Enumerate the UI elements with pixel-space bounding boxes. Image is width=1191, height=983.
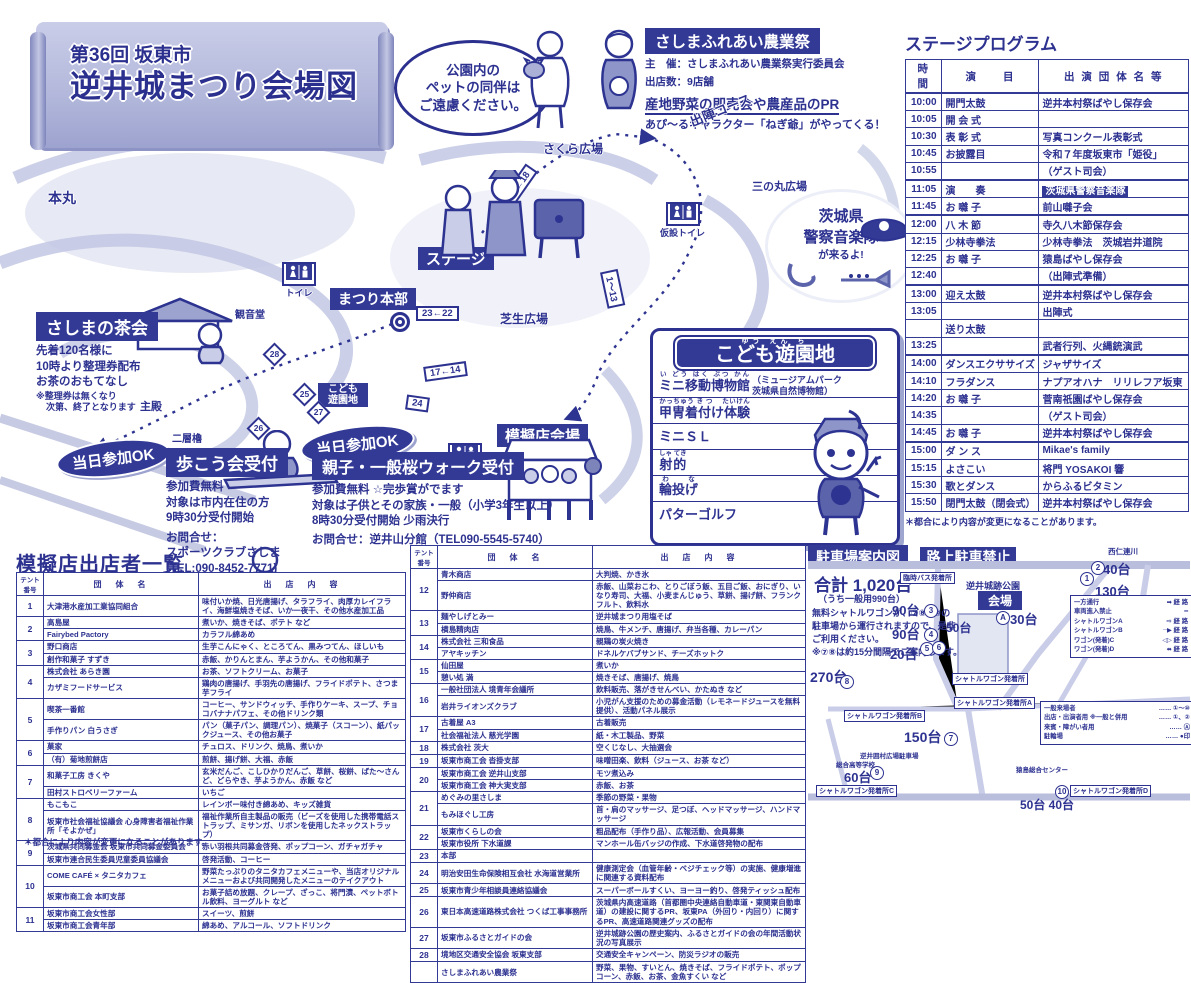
stage-cell: （ゲスト司会） <box>1039 162 1189 180</box>
stage-cell: 茨城県警察音楽隊 <box>1039 180 1189 198</box>
vendor-row: 27坂東市ふるさとガイドの会逆井城跡公園の歴史案内、ふるさとガイドの会の年間活動… <box>411 927 806 948</box>
parking-lot-count: 50台 <box>946 619 971 636</box>
parking-lot-count: 90台 <box>892 624 919 643</box>
stage-cell: 14:45 <box>906 424 942 442</box>
vendor-list-note: ＊都合により内容が変更になることがあります。 <box>24 836 210 848</box>
vendor-items: 逆井城まつり用塩そば <box>593 611 806 623</box>
vendor-tent-number <box>411 962 438 983</box>
stage-program-row: 13:05出陣式 <box>906 303 1189 320</box>
stage-cell: お 囃 子 <box>942 250 1039 267</box>
band-line1: 茨城県 <box>818 205 863 226</box>
shuttle-stop-label: シャトルワゴン発着所D <box>1070 785 1151 797</box>
vendor-row: 坂東市役所 下水道課マンホール缶バッジの作成、下水道啓発物の配布 <box>411 837 806 849</box>
vendor-items: 大判焼、かき氷 <box>593 569 806 581</box>
vendor-items: 生芋こんにゃく、ところてん、黒みつてん、ほしいも <box>199 641 406 653</box>
stage-cell: お 囃 子 <box>942 198 1039 216</box>
vendor-items: 健康測定会（血管年齢・ベジチェック等）の実施、健康増進に関連する資料配布 <box>593 862 806 883</box>
vendor-row: アヤキッチンドネルケバブサンド、チーズホットク <box>411 647 806 659</box>
tent-marker-number: 25 <box>298 388 311 401</box>
vendor-group-name: 菓家 <box>44 741 199 753</box>
shuttle-stop-label: シャトルワゴン発着所 <box>952 673 1028 685</box>
vendor-items: お茶、ソフトクリーム、お菓子 <box>199 665 406 677</box>
stage-cell: 少林寺拳法 <box>942 233 1039 250</box>
stage-cell: 逆井本村祭ばやし保存会 <box>1039 494 1189 511</box>
stage-cell: 菅南祇園ばやし保存会 <box>1039 390 1189 407</box>
parking-lot-count: 30台 <box>1010 609 1037 628</box>
stage-characters-illustration <box>430 170 590 260</box>
restroom-icon <box>666 202 700 226</box>
map-label-sannomaru: 三の丸広場 <box>752 178 807 194</box>
map-label-honmaru: 本丸 <box>48 188 76 208</box>
vendor-row: 25坂東市青少年相談員連絡協議会スーパーボールすくい、ヨーヨー釣り、啓発ティッシ… <box>411 884 806 897</box>
vendor-row: 26東日本高速道路株式会社 つくば工事事務所茨城県内高速道路（首都圏中央連絡自動… <box>411 897 806 927</box>
kids-attraction-text: ミニ移動博物館い どう はく ぶつ かん <box>659 378 750 393</box>
stage-program-row: 10:00開門太鼓逆井本村祭ばやし保存会 <box>906 93 1189 111</box>
user-legend-value: …… ●印 <box>1166 732 1190 741</box>
route-marker: 17←14 <box>423 361 467 382</box>
route-legend-symbol: ⬌ 経 路 <box>1167 645 1188 654</box>
stage-cell: 10:30 <box>906 128 942 145</box>
route-legend-row: 一方通行➡ 経 路 <box>1074 598 1188 607</box>
vendor-group-name: 創作和菓子 すずき <box>44 653 199 665</box>
stage-cell: 12:15 <box>906 233 942 250</box>
stage-cell: 15:15 <box>906 459 942 476</box>
stage-program-title: ステージプログラム <box>905 30 1189 55</box>
stage-col-time: 時 間 <box>906 60 942 94</box>
vendor-row: 23本部 <box>411 849 806 862</box>
vendor-items: 粗品配布（手作り品）、広報活動、会員募集 <box>593 825 806 837</box>
route-marker: 24 <box>405 395 429 413</box>
tent-marker: 25 <box>292 382 316 406</box>
vendor-group-name: 野仲商店 <box>438 581 593 611</box>
restroom-label: 仮設トイレ <box>660 226 705 239</box>
vendor-tent-number: 28 <box>411 948 438 961</box>
stage-col-program: 演 目 <box>942 60 1039 94</box>
vendor-items: 小児がん支援のための募金活動（レモネードジュースを無料提供）、活動パネル展示 <box>593 696 806 717</box>
vendor-items: 茨城県内高速道路（首都圏中央連絡自動車道・東関東自動車道）の建設に関するPR、坂… <box>593 897 806 927</box>
highlighted-performer: 茨城県警察音楽隊 <box>1042 186 1128 197</box>
stage-cell: 演 奏 <box>942 180 1039 198</box>
vendor-group-name: COME CAFÉ × タニタカフェ <box>44 865 199 886</box>
stage-cell: 令和７年度坂東市「姫役」 <box>1039 145 1189 162</box>
user-legend-value: …… Ⓐ <box>1169 723 1190 732</box>
vendor-row: 手作りパン 白うさぎパン（菓子パン、調理パン）、焼菓子（スコーン）、紙パックジュ… <box>17 720 406 741</box>
stage-program-row: 14:10フラダンスナプアオハナ リリレフア坂東 <box>906 373 1189 390</box>
vendor-group-name: 本部 <box>438 849 593 862</box>
tea-party-line2: 10時より整理券配布 <box>36 361 141 373</box>
vendor-row: 22坂東市くらしの会粗品配布（手作り品）、広報活動、会員募集 <box>411 825 806 837</box>
kids-attraction-item: ミニ移動博物館い どう はく ぶつ かん（ミュージアムパーク茨城県自然博物館） <box>653 371 897 397</box>
vendor-items: 空くじなし、大抽選会 <box>593 741 806 754</box>
tea-party-note1: ※整理券は無くなり <box>36 391 117 401</box>
stage-program-row: 14:35（ゲスト司会） <box>906 407 1189 424</box>
stage-cell: 15:00 <box>906 442 942 460</box>
vendor-tent-number: 17 <box>411 717 438 741</box>
vendor-items: ドネルケバブサンド、チーズホットク <box>593 647 806 659</box>
parking-lot-count: 60台 <box>844 767 871 786</box>
vendor-group-name: 大津港水産加工業協同組合 <box>44 596 199 617</box>
vendor-group-name: 明治安田生命保険相互会社 水海道営業所 <box>438 862 593 883</box>
route-legend-label: ワゴン(発着)C <box>1074 636 1114 645</box>
vendor-col-name-l: 団 体 名 <box>44 573 199 596</box>
vendor-tent-number: 3 <box>17 641 44 665</box>
parking-panel: 駐車場案内図 路上駐車禁止 合計 1,020台 （うち一般用990台） 無料シャ… <box>808 545 1190 841</box>
stage-program-row: 15:00ダ ン スMikae's family <box>906 442 1189 460</box>
stage-cell: 寺久八木節保存会 <box>1039 215 1189 233</box>
stage-program-row: 12:25お 囃 子猿島ばやし保存会 <box>906 250 1189 267</box>
vendor-row: 4株式会社 あらき園お茶、ソフトクリーム、お菓子 <box>17 665 406 677</box>
stage-program-row: 10:05開 会 式 <box>906 111 1189 128</box>
vendor-tent-number: 27 <box>411 927 438 948</box>
kids-attraction-ruby: かっちゅう き つ たいけん <box>659 398 750 405</box>
vendor-row: 6菓家チュロス、ドリンク、焼鳥、煮いか <box>17 741 406 753</box>
stage-cell: 写真コンクール表彰式 <box>1039 128 1189 145</box>
vendor-row: もみほぐし工房首・肩のマッサージ、足つぼ、ヘッドマッサージ、ハンドマッサージ <box>411 804 806 825</box>
stage-program-row: 10:30表 彰 式写真コンクール表彰式 <box>906 128 1189 145</box>
stage-program-row: 14:20お 囃 子菅南祇園ばやし保存会 <box>906 390 1189 407</box>
vendor-row: 13麺やしげとみー逆井城まつり用塩そば <box>411 611 806 623</box>
parking-lot-number: 7 <box>944 732 958 746</box>
shuttle-stop-label: シャトルワゴン発着所C <box>816 785 897 797</box>
kids-attraction-text: 甲冑着付け体験かっちゅう き つ たいけん <box>659 405 750 420</box>
vendor-group-name: 坂東市商工会 神大実支部 <box>438 780 593 792</box>
stage-cell <box>906 320 942 337</box>
user-legend-row: 駐輪場…… ●印 <box>1044 732 1190 741</box>
vendor-col-items-r: 出 店 内 容 <box>593 546 806 569</box>
vendor-tent-number: 8 <box>17 798 44 840</box>
stage-cell: ダンスエクササイズ <box>942 355 1039 373</box>
parking-landmark-label: 猿島総合センター <box>1016 764 1068 774</box>
stage-program-row: 15:30歌とダンスからふるビタミン <box>906 477 1189 494</box>
stage-cell: 前山囃子会 <box>1039 198 1189 216</box>
walk-reception-panel: 歩こう会受付 参加費無料 対象は市内在住の方 9時30分受付開始 お問合せ： ス… <box>166 448 336 577</box>
vendor-row: 14株式会社 三和食品親鶏の炭火焼き <box>411 635 806 647</box>
vendor-tent-number: 16 <box>411 684 438 717</box>
user-legend-label: 駐輪場 <box>1044 732 1063 741</box>
vendor-row: 社会福祉法人 慈光学園紙・木工製品、野菜 <box>411 729 806 741</box>
vendor-tent-number: 21 <box>411 792 438 825</box>
stage-program-row: 13:00迎え太鼓逆井本村祭ばやし保存会 <box>906 285 1189 303</box>
vendor-group-name: 東日本高速道路株式会社 つくば工事事務所 <box>438 897 593 927</box>
vendor-group-name: 麺やしげとみー <box>438 611 593 623</box>
vendor-row: さしまふれあい農業祭野菜、果物、すいとん、焼きそば、フライドポテト、ポップコーン… <box>411 962 806 983</box>
route-legend-row: シャトルワゴンB┈▶ 経 路 <box>1074 626 1188 635</box>
parking-lot-count: 150台 <box>904 727 941 747</box>
vendor-group-name: 境地区交通安全協会 坂東支部 <box>438 948 593 961</box>
user-legend-label: 一般来場者 <box>1044 704 1075 713</box>
tea-party-panel: さしまの茶会 先着120名様に 10時より整理券配布 お茶のおもてなし ※整理券… <box>36 312 216 413</box>
vendor-group-name: 坂東市青少年相談員連絡協議会 <box>438 884 593 897</box>
stage-program-table: 時 間 演 目 出 演 団 体 名 等 10:00開門太鼓逆井本村祭ばやし保存会… <box>905 59 1189 512</box>
vendor-items: 飲料販売、落がきせんべい、かたぬき など <box>593 684 806 696</box>
kids-attraction-text: 射的しゃ てき <box>659 457 687 472</box>
vendor-group-name: 社会福祉法人 慈光学園 <box>438 729 593 741</box>
vendor-tent-number: 20 <box>411 768 438 792</box>
stage-cell: （ゲスト司会） <box>1039 407 1189 424</box>
sakura-walk-line2: 対象は子供とその家族・一般（小学3年生以上） <box>312 500 560 512</box>
vendor-tent-number: 14 <box>411 635 438 659</box>
vendor-group-name: もみほぐし工房 <box>438 804 593 825</box>
vendor-row: 坂東市連合民生委員児童委員協議会啓発活動、コーヒー <box>17 853 406 865</box>
vendor-row: 横島精肉店焼鳥、牛メンチ、唐揚げ、弁当各種、カレーパン <box>411 623 806 635</box>
kids-attraction-ruby: しゃ てき <box>659 450 687 457</box>
stage-cell: お 囃 子 <box>942 424 1039 442</box>
kids-attraction-text: ミニＳＬ <box>659 429 711 444</box>
vendor-table-left: テント番号 団 体 名 出 店 内 容 1大津港水産加工業協同組合味付いか焼、日… <box>16 572 406 932</box>
vendor-col-items-l: 出 店 内 容 <box>199 573 406 596</box>
vendor-col-no-l: テント番号 <box>17 573 44 596</box>
route-legend-symbol: ⇨ 経 路 <box>1167 617 1188 626</box>
stage-program-row: 12:15少林寺拳法少林寺拳法 茨城岩井道院 <box>906 233 1189 250</box>
vendor-items: 赤飯、かりんとまん、芋ようかん、その他和菓子 <box>199 653 406 665</box>
vendor-row: （有）菊地煎餅店煎餅、揚げ餅、大福、赤飯 <box>17 753 406 765</box>
vendor-items: 焼鳥、牛メンチ、唐揚げ、弁当各種、カレーパン <box>593 623 806 635</box>
stage-program-row: 14:00ダンスエクササイズジャザサイズ <box>906 355 1189 373</box>
vendor-items: 親鶏の炭火焼き <box>593 635 806 647</box>
vendor-items: 煎餅、揚げ餅、大福、赤飯 <box>199 753 406 765</box>
vendor-group-name: 坂東市商工会 逆井山支部 <box>438 768 593 780</box>
vendor-row: 岩井ライオンズクラブ小児がん支援のための募金活動（レモネードジュースを無料提供）… <box>411 696 806 717</box>
stage-cell: 14:35 <box>906 407 942 424</box>
vendor-row: 24明治安田生命保険相互会社 水海道営業所健康測定会（血管年齢・ベジチェック等）… <box>411 862 806 883</box>
tea-party-title: さしまの茶会 <box>36 312 158 341</box>
kids-attraction-ruby: い どう はく ぶつ かん <box>659 371 750 378</box>
stage-cell: 14:20 <box>906 390 942 407</box>
tea-party-line1: 先着120名様に <box>36 345 113 357</box>
vendor-col-no-r: テント番号 <box>411 546 438 569</box>
stage-cell: 送り太鼓 <box>942 320 1039 337</box>
vendor-group-name: 喫茶一番館 <box>44 698 199 719</box>
stage-cell: 11:05 <box>906 180 942 198</box>
parking-lot-number: 10 <box>1055 785 1069 799</box>
vendor-tent-number: 23 <box>411 849 438 862</box>
vendor-tent-number: 13 <box>411 611 438 635</box>
stage-cell: 12:25 <box>906 250 942 267</box>
vendor-group-name: 株式会社 あらき園 <box>44 665 199 677</box>
user-legend-row: 来賓・障がい者用…… Ⓐ <box>1044 723 1190 732</box>
vendor-items: 首・肩のマッサージ、足つぼ、ヘッドマッサージ、ハンドマッサージ <box>593 804 806 825</box>
vendor-items <box>593 849 806 862</box>
vendor-table-right: テント番号 団 体 名 出 店 内 容 12青木商店大判焼、かき氷野仲商店赤飯、… <box>410 545 806 983</box>
vendor-items: コーヒー、サンドウィッチ、手作りケーキ、スープ、チョコバナナパフェ、その他ドリン… <box>199 698 406 719</box>
parking-lot-number: 4 <box>924 628 938 642</box>
vendor-items: 交通安全キャンペーン、防災ラジオの販売 <box>593 948 806 961</box>
kids-note-line2: 茨城県自然博物館） <box>752 386 833 396</box>
map-label-yagura: 二層櫓 <box>172 430 202 445</box>
kids-park-panel: ゆう えん ち こども遊園地 ミニ移動博物館い どう はく ぶつ かん（ミュージ… <box>650 328 900 546</box>
vendor-row: 28境地区交通安全協会 坂東支部交通安全キャンペーン、防災ラジオの販売 <box>411 948 806 961</box>
stage-cell: 10:05 <box>906 111 942 128</box>
vendor-row: 16一般社団法人 境青年会議所飲料販売、落がきせんべい、かたぬき など <box>411 684 806 696</box>
vendor-group-name: 株式会社 三和食品 <box>438 635 593 647</box>
restroom-sign: 仮設トイレ <box>660 202 705 239</box>
vendor-group-name: 坂東市ふるさとガイドの会 <box>438 927 593 948</box>
vendor-group-name: 憩い処 満 <box>438 671 593 683</box>
parking-lot-count: 50台 40台 <box>1020 796 1074 813</box>
vendor-row: 野仲商店赤飯、山菜おこわ、とりごぼう飯、五目ご飯、おにぎり、いなり寿司、大福、小… <box>411 581 806 611</box>
map-label-kannondo: 観音堂 <box>235 306 265 321</box>
vendor-group-name: 坂東市商工会 沓掛支部 <box>438 754 593 767</box>
vendor-items: 野菜たっぷりのタニタカフェメニューや、当店オリジナルメニューおよび共同開発したメ… <box>199 865 406 886</box>
vendor-items: スイーツ、煎餅 <box>199 908 406 920</box>
parking-shuttle-line3: ご利用ください。 <box>812 634 884 644</box>
kids-attraction-note: （ミュージアムパーク茨城県自然博物館） <box>752 375 842 396</box>
stage-program-row: 14:45お 囃 子逆井本村祭ばやし保存会 <box>906 424 1189 442</box>
vendor-row: 8もこもこレインボー味付き綿あめ、キッズ雑貨 <box>17 798 406 810</box>
parking-river-label: 西仁連川 <box>1108 546 1138 557</box>
stage-cell <box>942 303 1039 320</box>
vendor-items: いちご <box>199 786 406 798</box>
route-legend-label: シャトルワゴンA <box>1074 617 1123 626</box>
route-legend-label: ワゴン(発着)D <box>1074 645 1114 654</box>
vendor-tent-number: 11 <box>17 908 44 932</box>
vendor-tent-number: 1 <box>17 596 44 617</box>
vendor-row: 坂東市商工会 本町支部お菓子詰め放題、クレープ、ざっこ、将門漬、ペットボトル飲料… <box>17 886 406 907</box>
stage-cell: 12:40 <box>906 267 942 285</box>
vendor-tent-number: 15 <box>411 659 438 683</box>
kids-park-title-text: こども遊園地 <box>715 344 835 366</box>
vendor-group-name: 田村ストロベリーファーム <box>44 786 199 798</box>
parking-lot-number: 3 <box>924 604 938 618</box>
vendor-tent-number: 19 <box>411 754 438 767</box>
vendor-items: 味付いか焼、日光唐揚げ、タラフライ、肉厚カレイフライ、海鮮塩焼きそば、いか一夜干… <box>199 596 406 617</box>
parking-route-legend: 一方通行➡ 経 路車両進入禁止━ シャトルワゴンA⇨ 経 路シャトルワゴンB┈▶… <box>1070 595 1191 658</box>
vendor-group-name: めぐみの里さしま <box>438 792 593 804</box>
police-cap-illustration <box>858 210 910 244</box>
stage-program-note: ＊都合により内容が変更になることがあります。 <box>905 515 1189 528</box>
user-legend-value: …… ①〜⑩ <box>1159 704 1190 713</box>
vendor-group-name: 手作りパン 白うさぎ <box>44 720 199 741</box>
stage-cell: Mikae's family <box>1039 442 1189 460</box>
vendor-items: 紙・木工製品、野菜 <box>593 729 806 741</box>
stage-cell: 13:25 <box>906 337 942 355</box>
shuttle-stop-label: シャトルワゴン発着所B <box>844 710 925 722</box>
sakura-walk-line3: 8時30分受付開始 少雨決行 <box>312 515 449 527</box>
stage-cell: 逆井本村祭ばやし保存会 <box>1039 285 1189 303</box>
vendor-row: 憩い処 満焼きそば、唐揚げ、焼鳥 <box>411 671 806 683</box>
vendor-row: 田村ストロベリーファームいちご <box>17 786 406 798</box>
restroom-icon <box>282 262 316 286</box>
vendor-row: 17古着屋 A3古着販売 <box>411 717 806 729</box>
vendor-items: カラフル綿あめ <box>199 629 406 641</box>
vendor-row: 3野口商店生芋こんにゃく、ところてん、黒みつてん、ほしいも <box>17 641 406 653</box>
route-legend-row: ワゴン(発着)D⬌ 経 路 <box>1074 645 1188 654</box>
vendor-row: 21めぐみの里さしま季節の野菜・果物 <box>411 792 806 804</box>
vendor-items: 赤飯、お茶 <box>593 780 806 792</box>
vendor-items: スーパーボールすくい、ヨーヨー釣り、啓発ティッシュ配布 <box>593 884 806 897</box>
parking-landmark-label: 総合高等学校 <box>836 759 875 769</box>
vendor-tent-number: 5 <box>17 698 44 740</box>
parking-lot-count: 90台 <box>892 600 919 619</box>
map-label-course: 出陣コース <box>687 89 754 131</box>
stage-program-row: 11:45お 囃 子前山囃子会 <box>906 198 1189 216</box>
vendor-items: お菓子詰め放題、クレープ、ざっこ、将門漬、ペットボトル飲料、ヨーグルト など <box>199 886 406 907</box>
restroom-sign: トイレ <box>282 262 316 299</box>
festival-flyer: { "title": {"line1": "第36回 坂東市", "line2"… <box>0 0 1191 842</box>
parking-bus-stop-label: 臨時バス発着所 <box>900 572 955 584</box>
vendor-items: 煮いか、焼きそば、ポテト など <box>199 617 406 629</box>
vendor-row: 5喫茶一番館コーヒー、サンドウィッチ、手作りケーキ、スープ、チョコバナナパフェ、… <box>17 698 406 719</box>
stage-cell: 14:00 <box>906 355 942 373</box>
vendor-row: 7和菓子工房 きくや玄米だんご、こしひかりだんご、草餅、桜餅、ばた〜さんど、どら… <box>17 765 406 786</box>
stage-cell: お披露目 <box>942 145 1039 162</box>
stage-cell: フラダンス <box>942 373 1039 390</box>
stage-cell: ナプアオハナ リリレフア坂東 <box>1039 373 1189 390</box>
vendor-group-name: 青木商店 <box>438 569 593 581</box>
vendor-group-name: 株式会社 茨大 <box>438 741 593 754</box>
kids-attraction-text: 輪投げわ な <box>659 482 698 497</box>
stage-cell: からふるビタミン <box>1039 477 1189 494</box>
route-marker: 1〜13 <box>600 269 625 309</box>
vendor-group-name: 古着屋 A3 <box>438 717 593 729</box>
parking-lot-number: 1 <box>1080 572 1094 586</box>
vendor-group-name: 横島精肉店 <box>438 623 593 635</box>
vendor-group-name: 仙田屋 <box>438 659 593 671</box>
parking-venue-label: 会場 <box>978 591 1022 610</box>
vendor-row: 坂東市商工会 神大実支部赤飯、お茶 <box>411 780 806 792</box>
shuttle-stop-label: シャトルワゴン発着所A <box>954 697 1035 709</box>
tea-party-note2: 次第、終了となります <box>46 402 136 412</box>
sakura-walk-contact: お問合せ：逆井山分館（TEL090-5545-5740） <box>312 534 550 546</box>
parking-lot-count: 40台 <box>1103 559 1130 578</box>
route-legend-label: シャトルワゴンB <box>1074 626 1123 635</box>
vendor-row: 15仙田屋煮いか <box>411 659 806 671</box>
vendor-tent-number: 2 <box>17 617 44 641</box>
vendor-items: チュロス、ドリンク、焼鳥、煮いか <box>199 741 406 753</box>
stage-program-row: 15:15よさこい将門 YOSAKOI 響 <box>906 459 1189 476</box>
stage-cell: 迎え太鼓 <box>942 285 1039 303</box>
vendor-items: 赤飯、山菜おこわ、とりごぼう飯、五目ご飯、おにぎり、いなり寿司、大福、小麦まんじ… <box>593 581 806 611</box>
vendor-group-name: カザミフードサービス <box>44 677 199 698</box>
stage-cell <box>942 267 1039 285</box>
vendor-group-name: 一般社団法人 境青年会議所 <box>438 684 593 696</box>
vendor-group-name: 坂東市商工会 本町支部 <box>44 886 199 907</box>
vendor-items: 焼きそば、唐揚げ、焼鳥 <box>593 671 806 683</box>
stage-cell: （出陣式準備） <box>1039 267 1189 285</box>
stage-program-row: 12:00八 木 節寺久八木節保存会 <box>906 215 1189 233</box>
stage-cell: 表 彰 式 <box>942 128 1039 145</box>
stage-program-row: 15:50閉門太鼓（閉会式）逆井本村祭ばやし保存会 <box>906 494 1189 511</box>
stage-cell <box>942 407 1039 424</box>
samurai-mascot-illustration <box>797 409 889 539</box>
stage-cell: 開門太鼓 <box>942 93 1039 111</box>
walk-reception-title: 歩こう会受付 <box>166 448 288 477</box>
restroom-label: トイレ <box>282 286 316 299</box>
vendor-tent-number: 10 <box>17 865 44 907</box>
stage-cell: 猿島ばやし保存会 <box>1039 250 1189 267</box>
walk-contact1: お問合せ： <box>166 532 224 544</box>
walk-line2: 対象は市内在住の方 <box>166 497 270 509</box>
vendor-row: 12青木商店大判焼、かき氷 <box>411 569 806 581</box>
vendor-col-name-r: 団 体 名 <box>438 546 593 569</box>
vendor-group-name: （有）菊地煎餅店 <box>44 753 199 765</box>
vendor-items: 季節の野菜・果物 <box>593 792 806 804</box>
stage-cell: 閉門太鼓（閉会式） <box>942 494 1039 511</box>
user-legend-row: 一般来場者…… ①〜⑩ <box>1044 704 1190 713</box>
stage-cell: よさこい <box>942 459 1039 476</box>
vendor-group-name: Fairybed Pactory <box>44 629 199 641</box>
vendor-row: 11坂東市商工会女性部スイーツ、煎餅 <box>17 908 406 920</box>
vendor-row: 坂東市商工会青年部綿あめ、アルコール、ソフトドリンク <box>17 920 406 932</box>
vendor-group-name: 高島屋 <box>44 617 199 629</box>
stage-cell: 逆井本村祭ばやし保存会 <box>1039 424 1189 442</box>
vendor-row: 19坂東市商工会 沓掛支部味噌田楽、飲料（ジュース、お茶 など） <box>411 754 806 767</box>
sakura-walk-line1: 参加費無料 ☆完歩賞がでます <box>312 484 464 496</box>
stage-program-row: 11:05演 奏茨城県警察音楽隊 <box>906 180 1189 198</box>
stage-cell: 10:45 <box>906 145 942 162</box>
vendor-items: 古着販売 <box>593 717 806 729</box>
stage-program-row: 12:40（出陣式準備） <box>906 267 1189 285</box>
